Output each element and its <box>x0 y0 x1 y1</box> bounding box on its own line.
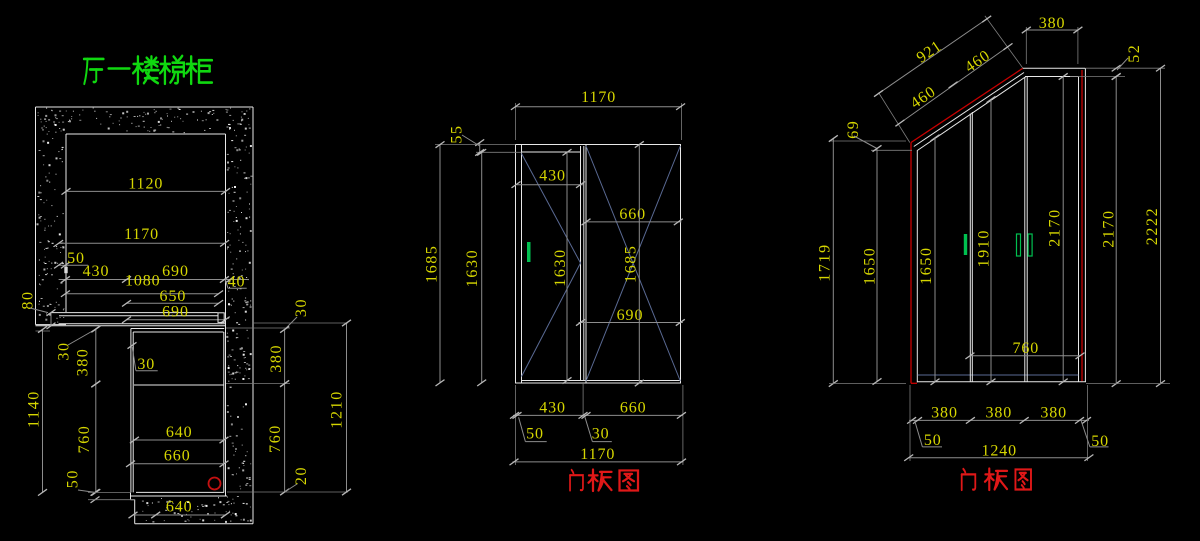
svg-text:1630: 1630 <box>464 249 481 287</box>
svg-text:760: 760 <box>76 425 93 454</box>
svg-text:80: 80 <box>20 290 37 309</box>
svg-text:1170: 1170 <box>124 226 159 243</box>
svg-text:690: 690 <box>162 304 189 321</box>
svg-text:380: 380 <box>1039 15 1066 32</box>
svg-text:69: 69 <box>845 120 862 139</box>
svg-text:430: 430 <box>539 400 566 417</box>
svg-text:2170: 2170 <box>1047 208 1064 246</box>
svg-text:2222: 2222 <box>1144 207 1161 245</box>
svg-text:1240: 1240 <box>981 442 1017 459</box>
svg-text:660: 660 <box>164 448 191 465</box>
svg-text:1080: 1080 <box>125 272 161 289</box>
svg-text:1140: 1140 <box>26 390 43 428</box>
svg-text:1650: 1650 <box>918 246 935 284</box>
svg-text:660: 660 <box>619 206 646 223</box>
svg-text:30: 30 <box>293 298 310 317</box>
svg-text:640: 640 <box>166 424 193 441</box>
svg-text:380: 380 <box>268 344 285 373</box>
svg-text:1120: 1120 <box>128 176 163 193</box>
svg-text:1170: 1170 <box>581 89 616 106</box>
svg-text:760: 760 <box>267 424 284 453</box>
svg-text:55: 55 <box>449 124 466 143</box>
svg-text:650: 650 <box>160 288 187 305</box>
svg-text:52: 52 <box>1126 44 1143 63</box>
svg-text:1685: 1685 <box>423 244 440 282</box>
svg-text:1685: 1685 <box>622 244 639 282</box>
svg-text:380: 380 <box>1040 404 1067 421</box>
svg-text:50: 50 <box>526 426 544 443</box>
svg-text:50: 50 <box>1091 433 1109 450</box>
svg-text:1630: 1630 <box>552 248 569 286</box>
svg-text:640: 640 <box>166 499 193 516</box>
svg-text:430: 430 <box>83 263 110 280</box>
svg-text:380: 380 <box>931 404 958 421</box>
svg-text:50: 50 <box>64 469 81 488</box>
svg-text:20: 20 <box>293 466 310 485</box>
svg-text:1210: 1210 <box>328 390 345 428</box>
svg-text:40: 40 <box>228 273 246 290</box>
svg-text:1910: 1910 <box>975 229 992 267</box>
svg-text:760: 760 <box>1012 340 1039 357</box>
svg-text:380: 380 <box>985 404 1012 421</box>
svg-text:660: 660 <box>620 400 647 417</box>
svg-text:1650: 1650 <box>862 247 879 285</box>
svg-text:430: 430 <box>539 167 566 184</box>
svg-text:30: 30 <box>592 426 610 443</box>
svg-text:380: 380 <box>75 348 92 377</box>
svg-text:2170: 2170 <box>1101 209 1118 247</box>
svg-text:690: 690 <box>162 263 189 280</box>
svg-text:1719: 1719 <box>816 243 833 281</box>
svg-text:1170: 1170 <box>580 446 615 463</box>
